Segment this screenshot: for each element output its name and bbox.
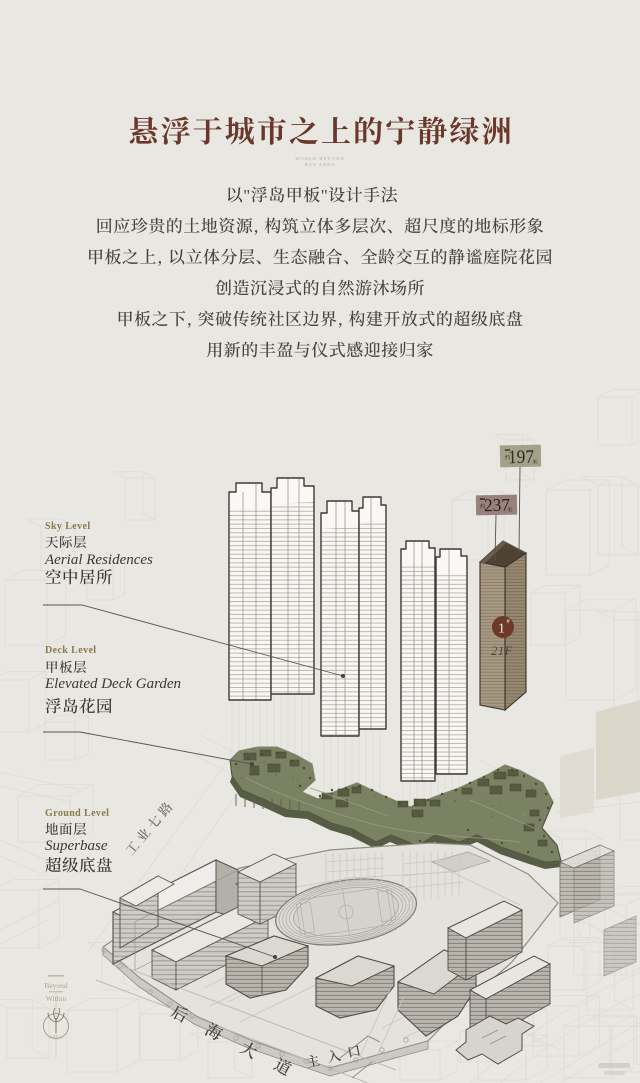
svg-text:1: 1	[498, 622, 505, 637]
svg-text:197: 197	[508, 447, 534, 468]
svg-text:米: 米	[507, 506, 513, 514]
svg-text:1812: 1812	[50, 1035, 62, 1039]
svg-text:21F: 21F	[491, 644, 513, 658]
svg-text:米: 米	[532, 458, 538, 466]
svg-text:Beyond: Beyond	[44, 981, 68, 990]
svg-text:Within: Within	[46, 994, 67, 1003]
